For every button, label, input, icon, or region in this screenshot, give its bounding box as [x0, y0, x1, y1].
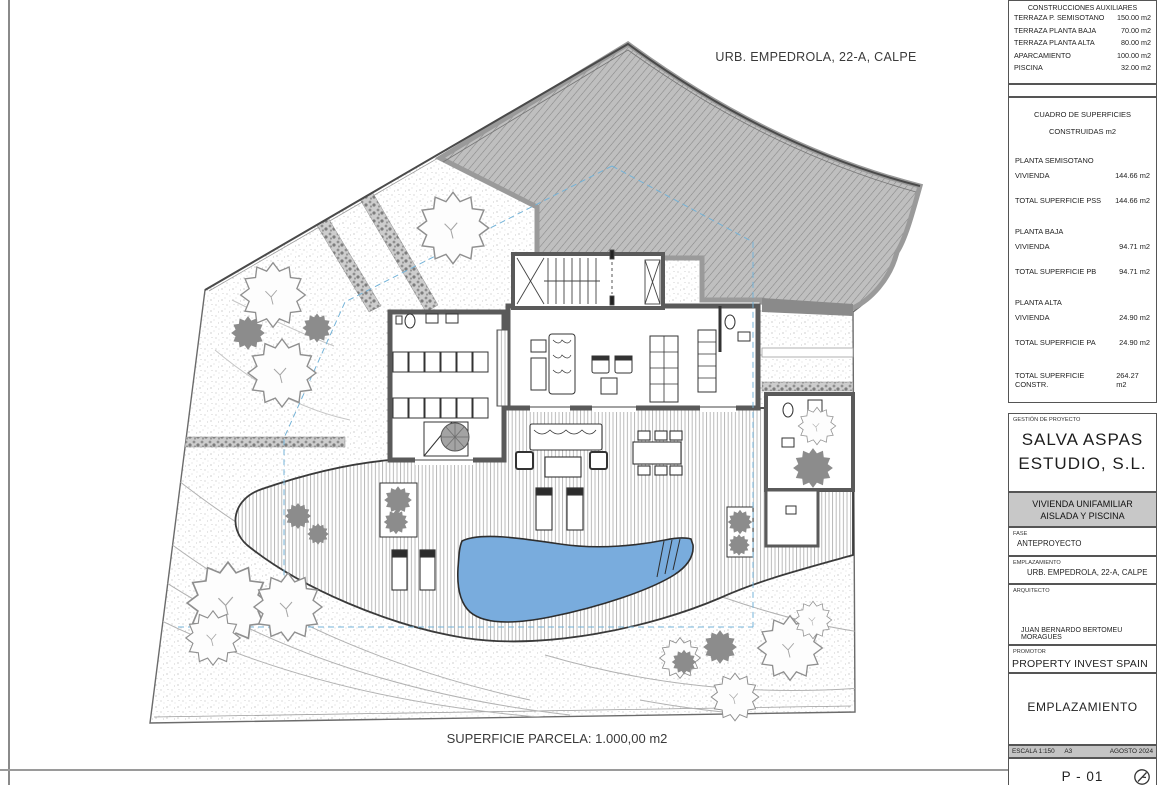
row-value: 94.71 m2	[1119, 242, 1150, 251]
field-value: PROPERTY INVEST SPAIN S.L.	[1009, 655, 1156, 673]
row-value: 24.90 m2	[1119, 313, 1150, 322]
row-value: 144.66 m2	[1115, 196, 1150, 205]
fase-box: FASE ANTEPROYECTO	[1008, 527, 1157, 556]
studio-name-line1: SALVA ASPAS	[1009, 428, 1156, 452]
row-label: TOTAL SUPERFICIE PA	[1015, 338, 1096, 347]
table-row: TERRAZA PLANTA ALTA80.00 m2	[1009, 37, 1156, 50]
table-row: VIVIENDA94.71 m2	[1009, 242, 1156, 251]
field-label: PROMOTOR	[1009, 646, 1156, 655]
section-heading: PLANTA ALTA	[1009, 298, 1156, 307]
field-value: ANTEPROYECTO	[1009, 537, 1156, 548]
row-value: 24.90 m2	[1119, 338, 1150, 347]
table-row: TERRAZA P. SEMISOTANO150.00 m2	[1009, 12, 1156, 25]
management-label: GESTIÓN DE PROYECTO	[1009, 414, 1156, 423]
promotor-box: PROMOTOR PROPERTY INVEST SPAIN S.L.	[1008, 645, 1157, 673]
section-heading: PLANTA SEMISOTANO	[1009, 156, 1156, 165]
row-label: VIVIENDA	[1015, 313, 1050, 322]
row-label: TERRAZA P. SEMISOTANO	[1014, 12, 1104, 25]
studio-box: GESTIÓN DE PROYECTO SALVA ASPAS ESTUDIO,…	[1008, 413, 1157, 492]
table-row: TOTAL SUPERFICIE PB94.71 m2	[1009, 267, 1156, 276]
row-label: PISCINA	[1014, 62, 1043, 75]
table-row: APARCAMIENTO100.00 m2	[1009, 50, 1156, 63]
project-line2: AISLADA Y PISCINA	[1009, 510, 1156, 522]
titleblock-spacer	[1008, 84, 1157, 97]
row-label: TOTAL SUPERFICIE CONSTR.	[1015, 371, 1116, 389]
sheet-page: URB. EMPEDROLA, 22-A, CALPE SUPERFICIE P…	[0, 0, 1170, 785]
field-value: URB. EMPEDROLA, 22-A, CALPE	[1009, 566, 1156, 577]
row-label: TERRAZA PLANTA BAJA	[1014, 25, 1096, 38]
field-label: FASE	[1009, 528, 1156, 537]
table-row: VIVIENDA144.66 m2	[1009, 171, 1156, 180]
paper-size: A3	[1064, 746, 1104, 757]
sheet-title: EMPLAZAMIENTO	[1009, 674, 1156, 714]
row-value: 150.00 m2	[1117, 12, 1151, 25]
arquitecto-box: ARQUITECTO JUAN BERNARDO BERTOMEU MORAGU…	[1008, 584, 1157, 645]
row-label: VIVIENDA	[1015, 171, 1050, 180]
surfaces-table: CUADRO DE SUPERFICIES CONSTRUIDAS m2 PLA…	[1008, 97, 1157, 403]
site-plan-drawing	[0, 0, 1008, 785]
row-label: TOTAL SUPERFICIE PB	[1015, 267, 1096, 276]
row-label: APARCAMIENTO	[1014, 50, 1071, 63]
section-heading: PLANTA BAJA	[1009, 227, 1156, 236]
row-value: 264.27 m2	[1116, 371, 1150, 389]
row-label: TERRAZA PLANTA ALTA	[1014, 37, 1095, 50]
table-row: PISCINA32.00 m2	[1009, 62, 1156, 75]
scale-value: ESCALA 1:150	[1012, 746, 1064, 757]
studio-name-line2: ESTUDIO, S.L.	[1009, 452, 1156, 476]
row-value: 100.00 m2	[1117, 50, 1151, 63]
aux-table-title: CONSTRUCCIONES AUXILIARES	[1009, 1, 1156, 12]
north-arrow-icon	[1133, 768, 1151, 785]
row-value: 144.66 m2	[1115, 171, 1150, 180]
sheet-date: AGOSTO 2024	[1105, 746, 1153, 757]
row-value: 32.00 m2	[1121, 62, 1151, 75]
row-label: VIVIENDA	[1015, 242, 1050, 251]
surfaces-title: CUADRO DE SUPERFICIES	[1009, 110, 1156, 119]
row-label: TOTAL SUPERFICIE PSS	[1015, 196, 1101, 205]
grand-total-row: TOTAL SUPERFICIE CONSTR.264.27 m2	[1009, 371, 1156, 389]
row-value: 70.00 m2	[1121, 25, 1151, 38]
field-value: JUAN BERNARDO BERTOMEU MORAGUES	[1013, 625, 1156, 641]
surfaces-subtitle: CONSTRUIDAS m2	[1009, 127, 1156, 136]
aux-constructions-table: CONSTRUCCIONES AUXILIARES TERRAZA P. SEM…	[1008, 0, 1157, 84]
field-label: ARQUITECTO	[1009, 585, 1156, 594]
sheet-frame-bottom	[0, 769, 1008, 771]
emplazamiento-box: EMPLAZAMIENTO URB. EMPEDROLA, 22-A, CALP…	[1008, 556, 1157, 584]
table-row: VIVIENDA24.90 m2	[1009, 313, 1156, 322]
scale-strip: ESCALA 1:150 A3 AGOSTO 2024	[1008, 745, 1157, 758]
studio-name: SALVA ASPAS ESTUDIO, S.L.	[1009, 428, 1156, 476]
site-address-label: URB. EMPEDROLA, 22-A, CALPE	[686, 50, 946, 64]
table-row: TOTAL SUPERFICIE PA24.90 m2	[1009, 338, 1156, 347]
table-row: TERRAZA PLANTA BAJA70.00 m2	[1009, 25, 1156, 38]
row-value: 94.71 m2	[1119, 267, 1150, 276]
project-title-band: VIVIENDA UNIFAMILIAR AISLADA Y PISCINA	[1008, 492, 1157, 527]
sheet-frame-left	[8, 0, 10, 785]
row-value: 80.00 m2	[1121, 37, 1151, 50]
field-label: EMPLAZAMIENTO	[1009, 557, 1156, 566]
parcel-area-caption: SUPERFICIE PARCELA: 1.000,00 m2	[407, 731, 707, 746]
sheet-number-box: P - 01	[1008, 758, 1157, 785]
sheet-title-box: EMPLAZAMIENTO	[1008, 673, 1157, 745]
table-row: TOTAL SUPERFICIE PSS144.66 m2	[1009, 196, 1156, 205]
project-line1: VIVIENDA UNIFAMILIAR	[1009, 498, 1156, 510]
